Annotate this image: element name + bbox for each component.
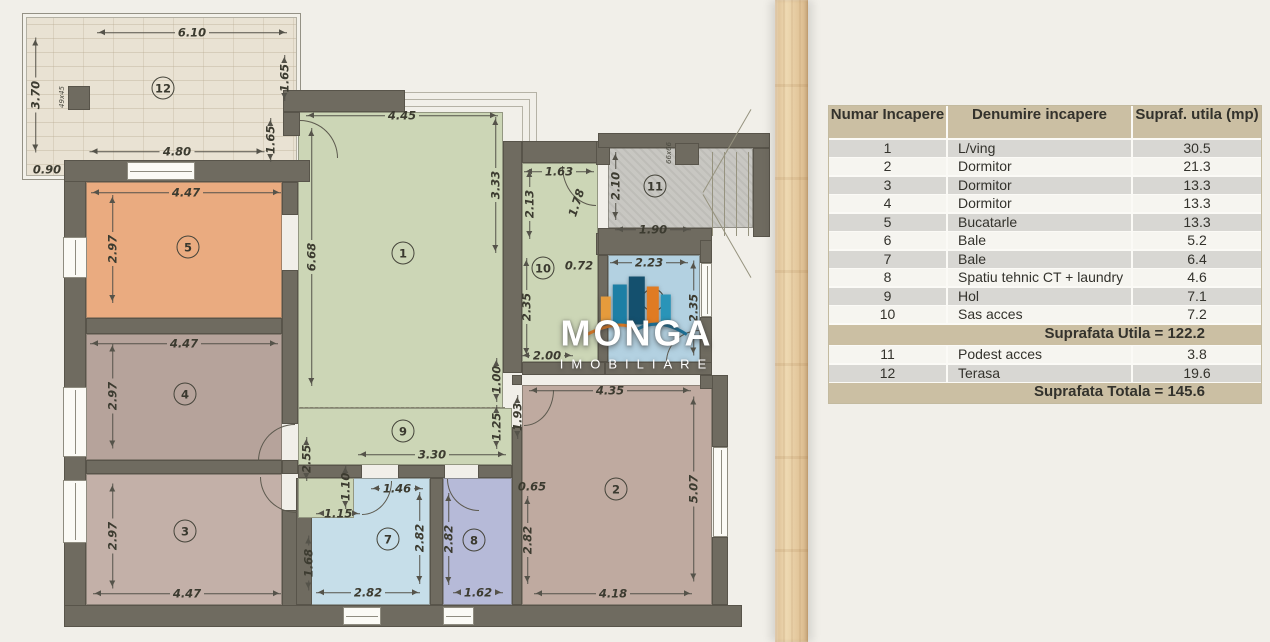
- wall: [753, 148, 770, 237]
- wall: [522, 362, 605, 375]
- stairs-line: [748, 152, 749, 236]
- dimension-label: 5.07: [688, 397, 700, 582]
- table-header-row: Numar Incapere Denumire incapere Supraf.…: [829, 106, 1261, 138]
- wall: [605, 362, 712, 375]
- table-cell: Dormitor: [948, 195, 1131, 212]
- table-cell: Sas acces: [948, 306, 1131, 323]
- table-header-number: Numar Incapere: [829, 106, 946, 138]
- table-row: 12Terasa19.6: [829, 365, 1261, 382]
- wall: [522, 141, 598, 163]
- table-cell: Dormitor: [948, 177, 1131, 194]
- dimension-label: 1.65: [279, 55, 291, 101]
- eaves-line: [536, 92, 537, 141]
- table-cell: 10: [829, 306, 946, 323]
- eaves-line: [522, 106, 523, 141]
- table-row: 11Podest acces3.8: [829, 346, 1261, 363]
- dimension-label: 3.33: [490, 117, 502, 253]
- table-cell: 1: [829, 140, 946, 157]
- table-row: 1L/ving30.5: [829, 140, 1261, 157]
- eaves-line: [405, 92, 537, 93]
- room-number-2: 2: [605, 478, 628, 501]
- table-cell: 8: [829, 269, 946, 286]
- terrace-column: [68, 86, 90, 110]
- room-number-10: 10: [532, 257, 555, 280]
- table-cell: 7.2: [1133, 306, 1261, 323]
- dimension-label: 0.90: [30, 164, 64, 176]
- table-cell: 7: [829, 251, 946, 268]
- table-cell: Bale: [948, 251, 1131, 268]
- dimension-label: 4.35: [529, 385, 691, 397]
- wall: [700, 240, 712, 263]
- dimension-label: 3.30: [358, 449, 506, 461]
- dimension-label: 1.90: [615, 224, 691, 236]
- window: [701, 263, 712, 317]
- window: [63, 237, 87, 278]
- wall: [512, 375, 522, 385]
- column-size-label: 66x66: [665, 142, 673, 164]
- table-cell: Spatiu tehnic CT + laundry: [948, 269, 1131, 286]
- table-cell: 2: [829, 158, 946, 175]
- room-number-5: 5: [177, 236, 200, 259]
- table-row: 8Spatiu tehnic CT + laundry4.6: [829, 269, 1261, 286]
- room-number-6: 6: [642, 289, 665, 312]
- wall: [282, 270, 298, 424]
- dimension-label: 2.82: [443, 493, 455, 585]
- table-row: 3Dormitor13.3: [829, 177, 1261, 194]
- dimension-label: 1.15: [316, 508, 338, 520]
- dimension-label: 0.72: [562, 260, 596, 272]
- table-row: 7Bale6.4: [829, 251, 1261, 268]
- room-number-4: 4: [174, 383, 197, 406]
- dimension-label: 2.97: [107, 195, 119, 303]
- table-body: 1L/ving30.52Dormitor21.33Dormitor13.34Do…: [829, 140, 1261, 404]
- dimension-label: 2.10: [610, 152, 622, 220]
- table-header-area: Supraf. utila (mp): [1133, 106, 1261, 138]
- dimension-label: 2.82: [414, 492, 426, 584]
- dimension-label: 4.45: [306, 110, 498, 122]
- dimension-label: 2.97: [107, 344, 119, 449]
- dimension-label: 6.68: [306, 128, 318, 386]
- wall: [598, 255, 608, 362]
- table-row: 6Bale5.2: [829, 232, 1261, 249]
- dimension-label: 3.70: [30, 38, 42, 153]
- screenshot-root: MONGA IMOBILIARE 6.103.701.651.654.800.9…: [0, 0, 1270, 642]
- dimension-label: 2.35: [521, 258, 533, 356]
- wall: [478, 465, 512, 478]
- table-cell: 21.3: [1133, 158, 1261, 175]
- table-cell: 6: [829, 232, 946, 249]
- table-row: 2Dormitor21.3: [829, 158, 1261, 175]
- table-cell: 5: [829, 214, 946, 231]
- window: [443, 607, 474, 625]
- wall: [283, 112, 300, 136]
- stairs-line: [724, 152, 725, 236]
- room-number-12: 12: [152, 77, 175, 100]
- wall: [282, 182, 298, 215]
- table-cell: 4: [829, 195, 946, 212]
- table-cell: 13.3: [1133, 214, 1261, 231]
- dimension-label: 1.62: [453, 587, 503, 599]
- dimension-label: 4.18: [534, 588, 692, 600]
- dimension-label: 0.65: [515, 481, 549, 493]
- table-cell: Hol: [948, 288, 1131, 305]
- room-number-3: 3: [174, 520, 197, 543]
- window: [343, 607, 381, 625]
- window: [63, 387, 87, 457]
- table-cell: 13.3: [1133, 177, 1261, 194]
- wall: [86, 460, 282, 474]
- room-number-11: 11: [644, 175, 667, 198]
- table-cell: 3.8: [1133, 346, 1261, 363]
- table-cell: Terasa: [948, 365, 1131, 382]
- wall: [282, 460, 298, 474]
- wall: [712, 537, 728, 605]
- table-cell: 7.1: [1133, 288, 1261, 305]
- entry-column: [675, 143, 699, 165]
- wall: [512, 427, 522, 605]
- room-number-9: 9: [392, 420, 415, 443]
- dimension-label: 2.13: [524, 169, 536, 239]
- dimension-label: 4.47: [93, 588, 281, 600]
- table-cell: 30.5: [1133, 140, 1261, 157]
- table-cell: Dormitor: [948, 158, 1131, 175]
- table-cell: Bale: [948, 232, 1131, 249]
- window: [127, 162, 195, 180]
- dimension-label: 4.80: [90, 146, 265, 158]
- eaves-line: [529, 99, 530, 141]
- table-row: 5Bucatarle13.3: [829, 214, 1261, 231]
- window: [713, 447, 728, 537]
- eaves-line: [405, 99, 530, 100]
- table-summary-row: Suprafata Utila = 122.2: [829, 325, 1261, 345]
- table-cell: 3: [829, 177, 946, 194]
- dimension-label: 4.47: [91, 187, 281, 199]
- table-cell: 13.3: [1133, 195, 1261, 212]
- room-number-7: 7: [377, 528, 400, 551]
- dimension-label: 1.00: [491, 376, 503, 402]
- table-row: 9Hol7.1: [829, 288, 1261, 305]
- table-row: 4Dormitor13.3: [829, 195, 1261, 212]
- dimension-label: 6.10: [97, 27, 287, 39]
- room-number-1: 1: [392, 242, 415, 265]
- wall: [86, 318, 282, 334]
- dimension-label: 1.65: [265, 122, 277, 162]
- dimension-label: 2.35: [688, 261, 700, 356]
- column-size-label: 49x45: [58, 86, 66, 108]
- table-cell: 6.4: [1133, 251, 1261, 268]
- wall: [712, 375, 728, 447]
- table-cell: 5.2: [1133, 232, 1261, 249]
- eaves-line: [405, 106, 523, 107]
- dimension-label: 2.55: [301, 441, 313, 481]
- dimension-label: 2.97: [107, 484, 119, 589]
- dimension-label: 1.68: [303, 536, 315, 591]
- wall: [64, 605, 742, 627]
- table-cell: Podest acces: [948, 346, 1131, 363]
- window: [63, 480, 87, 543]
- table-cell: L/ving: [948, 140, 1131, 157]
- dimension-label: 1.10: [340, 483, 352, 509]
- stairs-line: [736, 152, 737, 236]
- table-summary-row: Suprafata Totala = 145.6: [829, 383, 1261, 403]
- room-number-8: 8: [463, 529, 486, 552]
- dimension-label: 2.00: [521, 350, 573, 362]
- dimension-label: 1.25: [491, 419, 503, 449]
- table-cell: Bucatarle: [948, 214, 1131, 231]
- dashed-boundary: [300, 407, 505, 408]
- table-cell: 19.6: [1133, 365, 1261, 382]
- table-header-name: Denumire incapere: [948, 106, 1131, 138]
- areas-table: Numar Incapere Denumire incapere Supraf.…: [828, 105, 1262, 404]
- wall: [283, 90, 405, 112]
- dimension-label: 2.82: [522, 496, 534, 584]
- dimension-label: 1.93: [512, 395, 524, 439]
- table-cell: 9: [829, 288, 946, 305]
- dimension-label: 2.82: [316, 587, 420, 599]
- table-cell: 4.6: [1133, 269, 1261, 286]
- wall: [398, 465, 445, 478]
- table-cell: 12: [829, 365, 946, 382]
- table-row: 10Sas acces7.2: [829, 306, 1261, 323]
- stairs-line: [712, 152, 713, 236]
- wood-divider: [775, 0, 808, 642]
- table-cell: 11: [829, 346, 946, 363]
- dimension-label: 2.23: [610, 257, 688, 269]
- wall: [503, 141, 522, 373]
